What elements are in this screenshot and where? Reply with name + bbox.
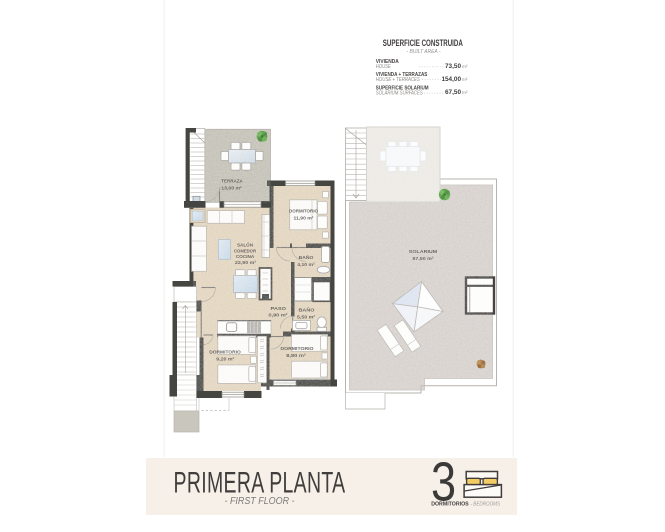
svg-text:PRIMERA PLANTA: PRIMERA PLANTA bbox=[174, 466, 346, 499]
svg-text:SOLARIUM SURFACES: SOLARIUM SURFACES bbox=[376, 90, 423, 96]
svg-text:m²: m² bbox=[462, 64, 468, 69]
svg-text:- BEDROOMS: - BEDROOMS bbox=[471, 501, 501, 507]
svg-text:HOUSE: HOUSE bbox=[376, 64, 391, 70]
svg-text:HOUSE + TERRACES: HOUSE + TERRACES bbox=[376, 77, 420, 83]
svg-text:m²: m² bbox=[462, 77, 468, 82]
svg-text:67,50: 67,50 bbox=[445, 89, 461, 96]
svg-text:DORMITORIOS: DORMITORIOS bbox=[431, 501, 469, 507]
svg-text:- BUILT AREA -: - BUILT AREA - bbox=[407, 49, 441, 55]
svg-text:m²: m² bbox=[462, 90, 468, 95]
svg-text:SUPERFICIE CONSTRUIDA: SUPERFICIE CONSTRUIDA bbox=[383, 38, 463, 48]
svg-text:- FIRST FLOOR -: - FIRST FLOOR - bbox=[225, 496, 296, 507]
svg-text:154,00: 154,00 bbox=[441, 76, 461, 83]
svg-text:73,50: 73,50 bbox=[445, 63, 461, 70]
